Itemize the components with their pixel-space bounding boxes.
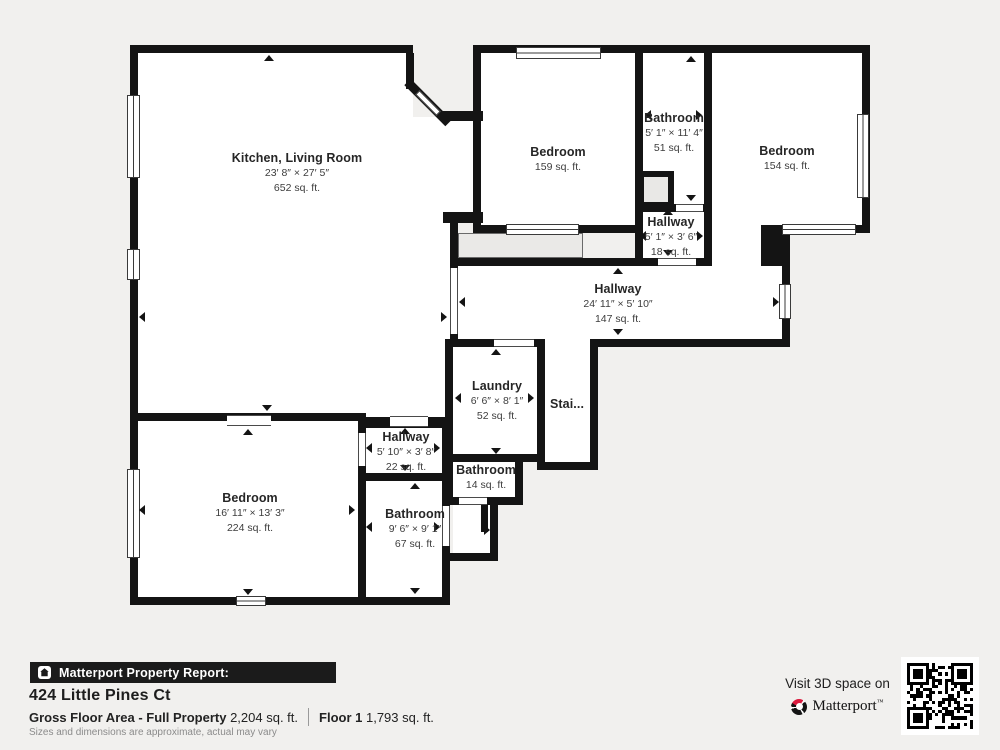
dim-arrow [491,349,501,355]
room-label-bathroom-mid: Bathroom 14 sq. ft. [456,462,516,493]
kitchen-extension [448,121,473,212]
wall-passage-bottom [445,553,498,561]
floor-plan: Kitchen, Living Room 23′ 8″ × 27′ 5″ 652… [0,0,1000,640]
dim-arrow [491,448,501,454]
matterport-wordmark: Matterport™ [812,698,883,715]
gfa-value-text: 2,204 sq. ft. [230,710,298,725]
room-label-bathroom-top: Bathroom 5′ 1″ × 11′ 4″ 51 sq. ft. [644,110,704,156]
visit-label: Visit 3D space on [780,676,895,691]
property-address: 424 Little Pines Ct [29,687,171,705]
house-icon [38,666,51,679]
report-label: Matterport Property Report: [59,666,229,680]
matterport-floor-plan-page: { "plan": { "wall_color": "#141414", "ro… [0,0,1000,750]
door-arrow [484,525,490,535]
wall-stub-under-diagonal [443,111,483,121]
stats-divider [308,708,309,726]
floor-label: Floor 1 [319,710,362,725]
dim-arrow [441,312,447,322]
room-label-bedroom-right: Bedroom 154 sq. ft. [759,143,815,174]
window-bedroom-right-bottom [782,224,856,235]
window-hallway-main-right [779,284,791,319]
room-label-hallway-small: Hallway 5′ 1″ × 3′ 6″ 18 sq. ft. [645,214,698,260]
door-laundry [494,339,534,347]
room-label-laundry: Laundry 6′ 6″ × 8′ 1″ 52 sq. ft. [471,378,524,424]
window-bedroom-bottom-bottom [236,596,266,606]
dim-arrow [243,589,253,595]
dim-arrow [262,405,272,411]
report-header-bar: Matterport Property Report: [30,662,336,683]
window-bedroom-top [516,47,601,59]
dim-arrow [139,312,145,322]
room-bedroom-top [473,45,643,233]
door-bathroom-mid [459,497,487,505]
room-label-bathroom-bottom: Bathroom 9′ 6″ × 9′ 1″ 67 sq. ft. [385,506,445,552]
dim-arrow [459,297,465,307]
dim-arrow [264,55,274,61]
room-kitchen-living [130,45,458,425]
porch-platform [458,233,583,258]
door-kitchen-hallway-bottom [390,416,428,427]
dim-arrow [686,195,696,201]
window-bedroom-right-side [857,114,869,198]
dim-arrow [686,56,696,62]
dim-arrow [455,393,461,403]
dim-arrow [528,393,534,403]
door-kitchen-bedroom [227,415,271,426]
dim-arrow [366,443,372,453]
wall-stub-kitchen-bedroom [443,212,483,223]
dim-arrow [410,483,420,489]
dim-arrow [410,588,420,594]
dim-arrow [697,231,703,241]
window-kitchen-left-2 [127,249,140,280]
room-label-bedroom-top: Bedroom 159 sq. ft. [530,144,586,175]
window-kitchen-left-1 [127,95,140,178]
room-label-bedroom-bottom: Bedroom 16′ 11″ × 13′ 3″ 224 sq. ft. [215,490,284,536]
room-label-stairs: Stai... [550,396,584,412]
closet-nook [638,171,674,208]
visit-3d-space[interactable]: Visit 3D space on Matterport™ [780,676,895,715]
window-bedroom-top-porch [506,224,579,235]
dim-arrow [139,505,145,515]
disclaimer: Sizes and dimensions are approximate, ac… [29,727,277,738]
dim-arrow [773,297,779,307]
room-label-hallway-bottom: Hallway 5′ 10″ × 3′ 8″ 22 sq. ft. [377,429,435,475]
qr-code [901,657,979,735]
gfa-label: Gross Floor Area - Full Property [29,710,226,725]
dim-arrow [613,268,623,274]
vestibule [712,225,761,266]
dim-arrow [243,429,253,435]
dim-arrow [366,522,372,532]
dim-arrow [613,329,623,335]
matterport-ring-icon [791,699,807,715]
qr-pattern [907,663,973,729]
floor-area-stats: Gross Floor Area - Full Property 2,204 s… [29,708,434,726]
room-label-kitchen-living: Kitchen, Living Room 23′ 8″ × 27′ 5″ 652… [232,150,362,196]
floor-value-text: 1,793 sq. ft. [366,710,434,725]
room-label-hallway-main: Hallway 24′ 11″ × 5′ 10″ 147 sq. ft. [583,281,652,327]
door-bathroom-top [676,204,703,212]
matterport-brand[interactable]: Matterport™ [780,698,895,715]
room-bedroom-right [704,45,870,233]
door-bedroom-hallway-bottom [358,433,366,466]
dim-arrow [349,505,355,515]
opening-kitchen-hallway [450,268,458,334]
